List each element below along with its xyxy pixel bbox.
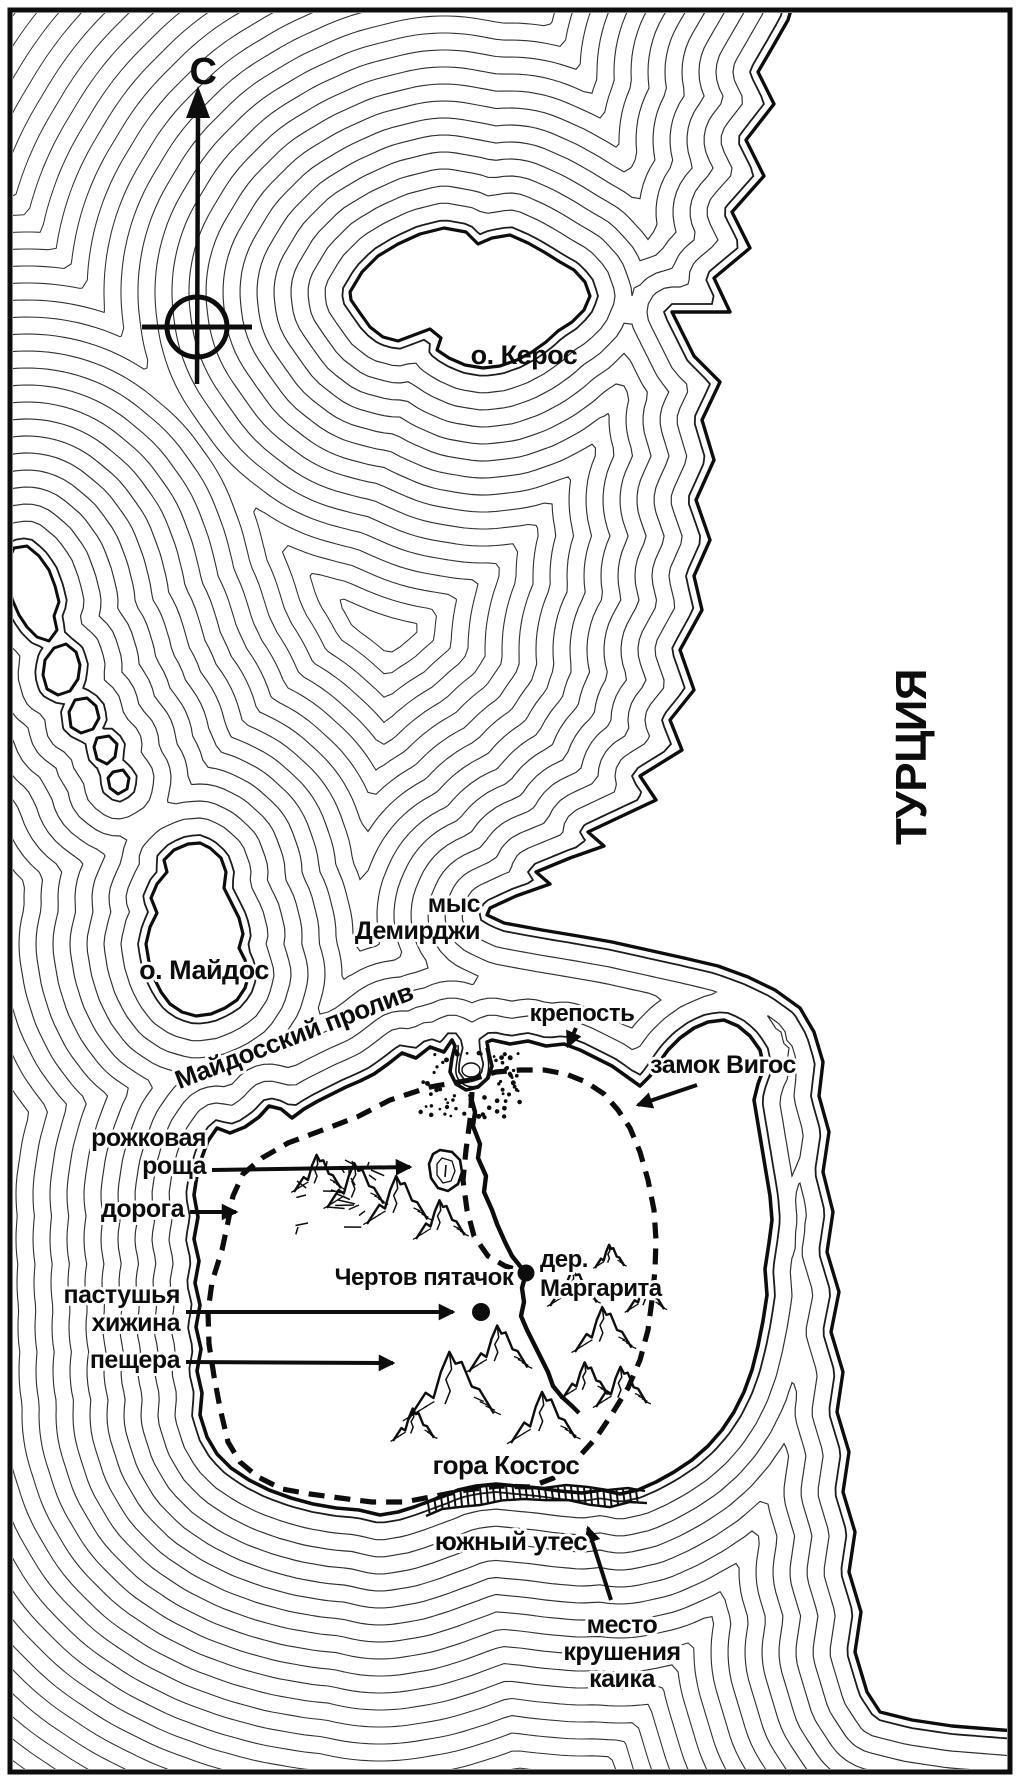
fortress-label: крепость	[530, 1000, 635, 1027]
village-label-line1: дер.	[540, 1246, 588, 1273]
hut-label-line2: хижина	[92, 1309, 182, 1337]
compass-rose	[142, 86, 252, 384]
castle-label: замок Вигос	[650, 1051, 796, 1079]
grove-label-line1: рожковая	[91, 1124, 206, 1152]
north-arrow-shaft	[197, 110, 198, 384]
south-cliff-label: южный утес	[435, 1526, 588, 1556]
depth-contour	[0, 0, 168, 1782]
wreck-arrow	[588, 1528, 611, 1600]
depth-contour	[0, 0, 25, 34]
depth-contour	[0, 0, 118, 1782]
village-label-line2: Маргарита	[540, 1275, 663, 1302]
hut-label-line1: пастушья	[64, 1281, 180, 1309]
depth-contour	[0, 0, 142, 1782]
landmass-coastline	[108, 770, 129, 794]
depth-contour	[0, 0, 4, 5]
wreck-label-line3: каика	[589, 1665, 656, 1693]
grove-label-line2: роща	[142, 1152, 207, 1180]
hut-dot	[472, 1303, 490, 1321]
landmass-coastline	[69, 698, 99, 733]
landmass-coastline	[94, 736, 117, 764]
turkey-region-label: ТУРЦИЯ	[887, 669, 936, 845]
cave-arrow	[186, 1362, 393, 1363]
cape-label-line1: мыс	[428, 890, 481, 918]
fortress-harbor-inner	[462, 1063, 480, 1077]
mount-kostos-label: гора Костос	[433, 1450, 580, 1480]
wreck-label-line2: крушения	[563, 1638, 680, 1666]
map-page: С о. Керос о. Майдос Майдосский пролив м…	[0, 0, 1020, 1782]
wreck-label-line1: место	[587, 1611, 658, 1639]
landmass-coastline	[43, 644, 80, 695]
maidos-island-label: о. Майдос	[139, 955, 269, 985]
road-label: дорога	[101, 1195, 186, 1223]
keros-island-label: о. Керос	[471, 340, 578, 370]
village-dot	[518, 1265, 535, 1282]
compass-north-label: С	[190, 51, 217, 93]
cave-label: пещера	[90, 1346, 182, 1374]
cape-label-line2: Демирджи	[355, 917, 480, 945]
devils-patch-label: Чертов пятачок	[335, 1264, 515, 1291]
navarone-map: С о. Керос о. Майдос Майдосский пролив м…	[0, 0, 1020, 1782]
grove-mark	[445, 1165, 446, 1177]
